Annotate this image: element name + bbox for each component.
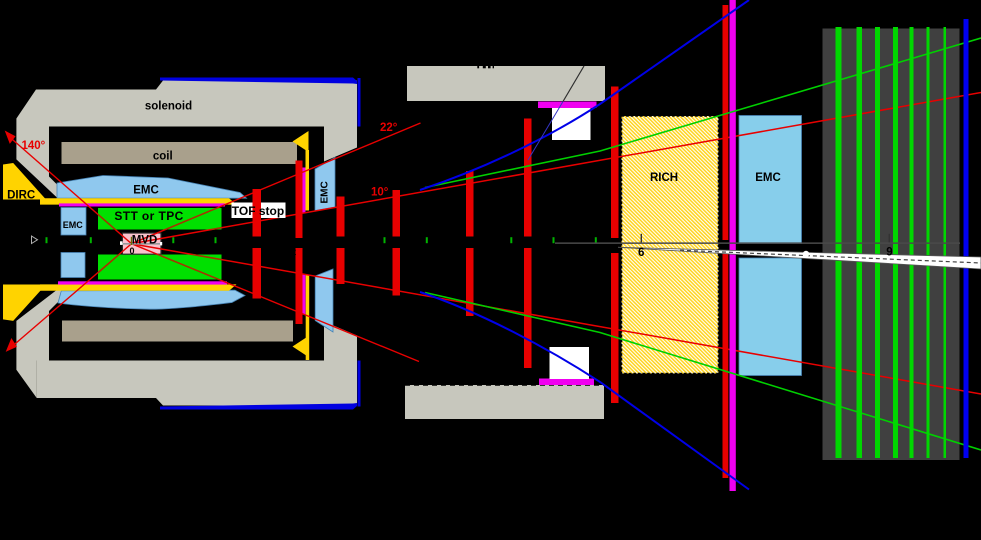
svg-text:MVD: MVD (132, 235, 158, 247)
svg-text:0: 0 (129, 246, 134, 256)
svg-text:coil: coil (153, 151, 173, 163)
svg-text:solenoid: solenoid (145, 101, 192, 113)
svg-text:6: 6 (638, 247, 644, 259)
svg-text:TOF stop: TOF stop (232, 204, 284, 218)
svg-text:22°: 22° (380, 122, 398, 134)
svg-text:EMC: EMC (133, 185, 159, 197)
svg-text:EMC: EMC (63, 220, 84, 230)
svg-text:DIRC: DIRC (7, 190, 35, 202)
svg-text:EMC: EMC (320, 181, 331, 203)
svg-text:9: 9 (886, 247, 892, 259)
svg-text:EMC: EMC (755, 172, 781, 184)
svg-text:140°: 140° (22, 140, 46, 152)
svg-text:RICH: RICH (650, 172, 678, 184)
svg-text:10°: 10° (371, 187, 389, 199)
svg-text:2: 2 (291, 247, 296, 257)
svg-text:STT or TPC: STT or TPC (114, 209, 183, 223)
